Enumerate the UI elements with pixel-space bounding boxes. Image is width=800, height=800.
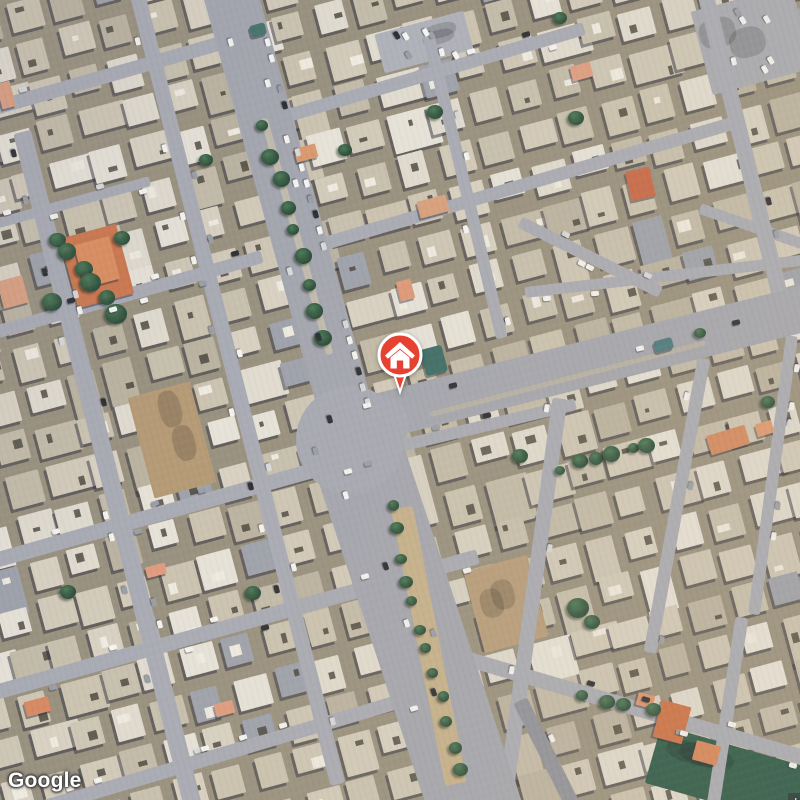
location-marker[interactable] <box>374 331 426 395</box>
satellite-map[interactable]: Google Imagery ©2025 Airbus, CNES / Airb… <box>0 0 800 800</box>
google-logo[interactable]: Google <box>8 769 82 793</box>
attribution-text: Imagery ©2025 Airbus, CNES / Airbus, Max… <box>794 796 800 800</box>
map-attribution: Imagery ©2025 Airbus, CNES / Airbus, Max… <box>788 793 800 800</box>
photo-grain-overlay <box>0 0 800 800</box>
